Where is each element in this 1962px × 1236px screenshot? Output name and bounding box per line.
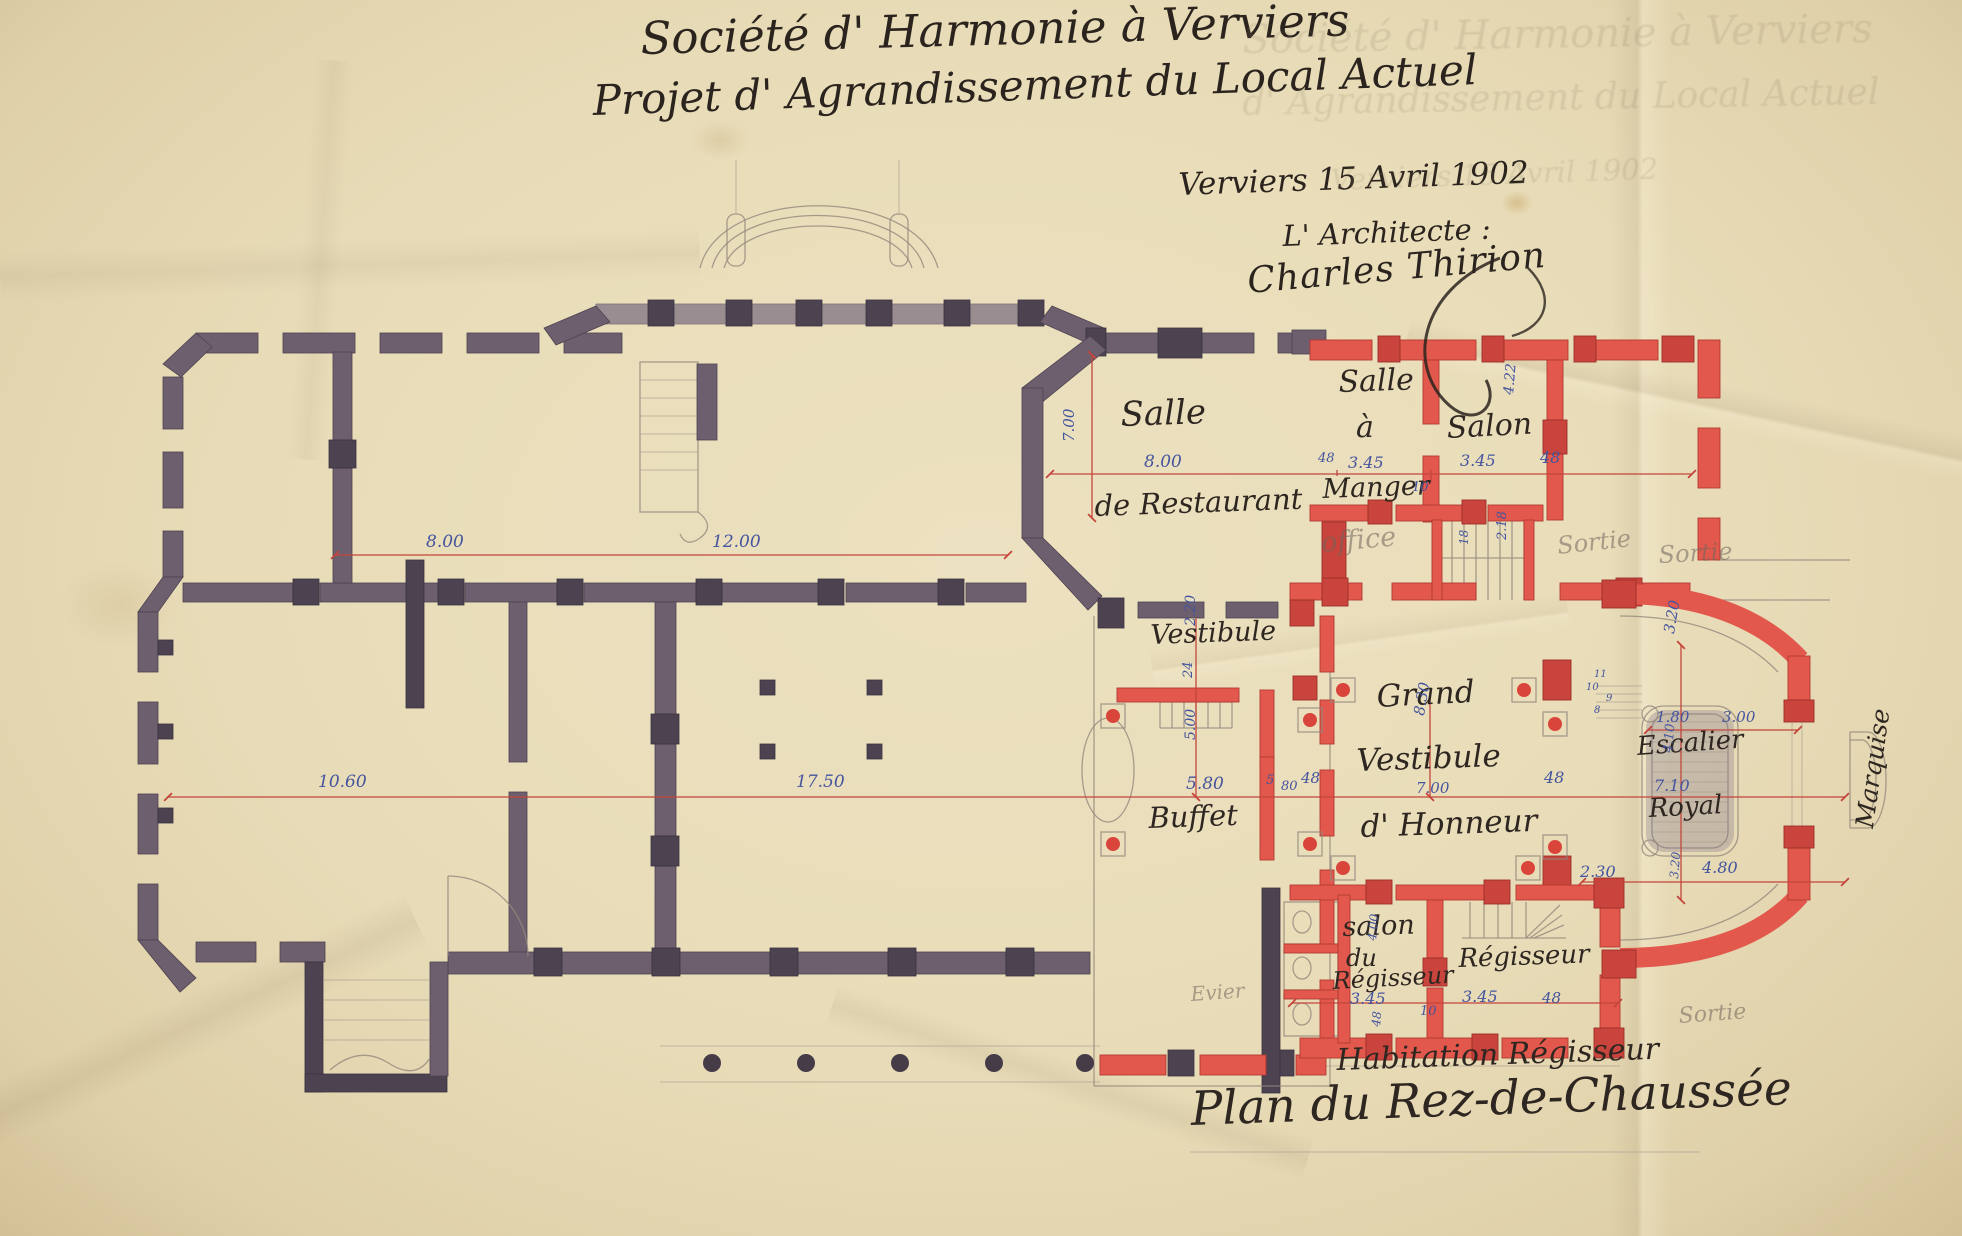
room-escalier-line2: Royal — [1648, 792, 1723, 822]
dim-3-45-manger: 3.45 — [1348, 455, 1384, 471]
caption-plan-title: Plan du Rez-de-Chaussée — [1190, 1065, 1792, 1133]
dim-3-45-regisseur: 3.45 — [1462, 989, 1498, 1005]
dim-8-00-restaurant: 8.00 — [1144, 454, 1182, 471]
dim-10-a: 10 — [1412, 481, 1429, 494]
dim-48-a: 48 — [1318, 452, 1335, 465]
ghost-date-line: Verviers 15 Avril 1902 — [1330, 155, 1659, 195]
pencil-note-evier: Evier — [1190, 980, 1245, 1004]
dim-3-45-salon: 3.45 — [1460, 453, 1496, 469]
room-grand-vestibule-line3: d' Honneur — [1360, 806, 1538, 843]
dim-2-20: 2.20 — [1184, 595, 1198, 626]
room-grand-vestibule-line2: Vestibule — [1356, 741, 1501, 777]
ghost-title-line2: d' Agrandissement du Local Actuel — [1242, 75, 1880, 122]
plan-labels-layer: Société d' Harmonie à Verviersd' Agrandi… — [0, 0, 1962, 1236]
room-buffet: Buffet — [1148, 801, 1238, 833]
dim-3-20-bottom: 3.20 — [1668, 851, 1682, 879]
dim-5-80: 5.80 — [1186, 776, 1224, 793]
dim-7-00-restaurant: 7.00 — [1062, 409, 1077, 442]
dim-3-20-top: 3.20 — [1662, 599, 1683, 635]
dim-2-30: 2.30 — [1580, 864, 1616, 880]
room-vestibule: Vestibule — [1150, 618, 1277, 649]
dim-10-b: 10 — [1420, 1005, 1437, 1018]
dim-48-b: 48 — [1540, 450, 1560, 466]
dim-5-00: 5.00 — [1184, 709, 1198, 740]
room-salle-a-manger-line1: Salle — [1338, 365, 1414, 398]
dim-4-80: 4.80 — [1702, 860, 1738, 876]
pencil-note-sortie-2: Sortie — [1658, 539, 1733, 567]
room-salle-restaurant-line2: de Restaurant — [1094, 485, 1303, 521]
room-escalier-line1: Escalier — [1636, 727, 1744, 760]
room-salle-a-manger-line2: à — [1356, 413, 1374, 443]
pencil-note-sortie-1: Sortie — [1556, 526, 1632, 558]
dim-17-50: 17.50 — [796, 774, 845, 791]
step-num-9: 9 — [1606, 694, 1612, 704]
dim-48-c: 48 — [1301, 771, 1320, 786]
dim-4-00: 4.00 — [1366, 913, 1380, 941]
dim-4-22: 4.22 — [1502, 363, 1519, 395]
dim-7-00-vestibule: 7.00 — [1416, 781, 1449, 796]
dim-12-00: 12.00 — [712, 534, 761, 551]
dim-80: 80 — [1281, 780, 1298, 793]
dim-3-45-salon-regisseur: 3.45 — [1350, 991, 1386, 1007]
pencil-note-sortie-3: Sortie — [1678, 1001, 1747, 1028]
dim-48-e: 48 — [1542, 991, 1561, 1006]
room-salon: Salon — [1446, 410, 1533, 444]
dim-48-d: 48 — [1544, 770, 1564, 786]
dim-8-00-left: 8.00 — [426, 534, 464, 551]
dim-2-18: 2.18 — [1496, 511, 1509, 540]
dim-18: 18 — [1458, 530, 1470, 545]
dim-10-60: 10.60 — [318, 774, 367, 791]
step-num-11: 11 — [1594, 670, 1607, 680]
ghost-title-line1: Société d' Harmonie à Verviers — [1242, 9, 1873, 60]
dim-4-10: 4.10 — [1662, 723, 1677, 753]
dim-5: 5 — [1266, 774, 1274, 787]
dim-24: 24 — [1182, 661, 1195, 678]
room-salle-restaurant-line1: Salle — [1120, 395, 1207, 432]
drawing-sheet: Société d' Harmonie à Verviers Projet d'… — [0, 0, 1962, 1236]
dim-3-00: 3.00 — [1722, 710, 1755, 725]
step-num-10: 10 — [1586, 683, 1599, 693]
dim-1-80: 1.80 — [1656, 710, 1689, 725]
step-num-8: 8 — [1594, 706, 1600, 716]
room-marquise: Marquise — [1852, 707, 1893, 829]
pencil-note-office: office — [1320, 523, 1397, 556]
room-regisseur: Régisseur — [1458, 941, 1590, 972]
dim-7-10: 7.10 — [1654, 778, 1690, 794]
dim-48-f: 48 — [1370, 1011, 1383, 1027]
